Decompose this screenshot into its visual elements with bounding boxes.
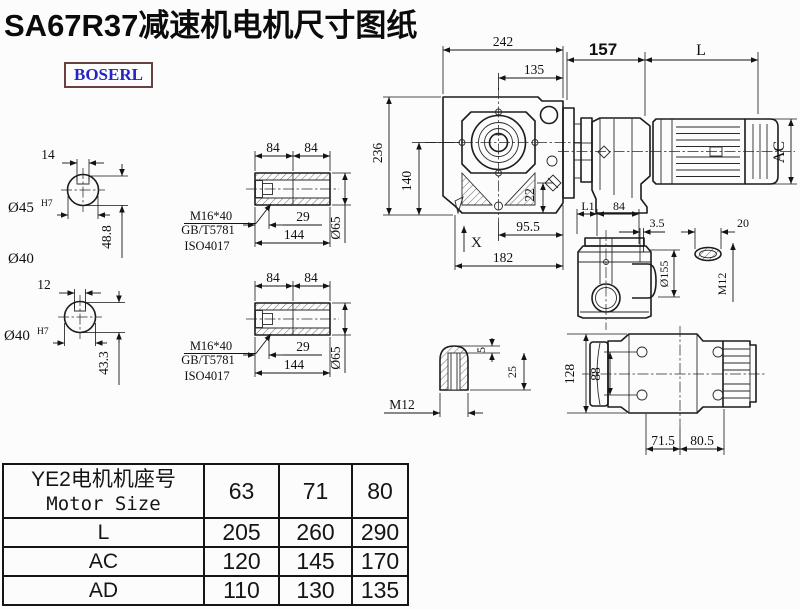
table-row-AD: AD 110 130 135 bbox=[3, 576, 408, 605]
table-header-row: YE2电机机座号 Motor Size 63 71 80 bbox=[3, 464, 408, 518]
dim-front-toaxis: 135 bbox=[524, 62, 545, 77]
table-row-AC: AC 120 145 170 bbox=[3, 547, 408, 576]
dim-side-gap: 3.5 bbox=[650, 216, 665, 230]
cell-AD-71: 130 bbox=[279, 576, 352, 605]
front-view-gearbox: 242 135 236 140 22 95.5 182 X bbox=[370, 34, 797, 270]
dim-side-flange: 84 bbox=[613, 199, 625, 213]
dim-keyheight-a: 48.8 bbox=[99, 225, 114, 249]
dim-bore-b: Ø40 bbox=[4, 328, 30, 344]
solid-shaft-section-a: 14 48.8 Ø45 H7 Ø40 bbox=[8, 147, 128, 267]
dim-bottom-right: 80.5 bbox=[690, 433, 714, 448]
dim-dia-b: Ø65 bbox=[328, 346, 343, 369]
label-std1-b: GB/T5781 bbox=[181, 353, 234, 367]
bottom-view-gearbox: 128 88 71.5 80.5 bbox=[562, 326, 766, 455]
dim-motor-len: L bbox=[696, 42, 706, 59]
dim-len1-b: 84 bbox=[266, 270, 280, 285]
dim-depth-b: 29 bbox=[296, 339, 310, 354]
dim-keywidth-a: 14 bbox=[41, 147, 55, 162]
side-view-gearbox: L1 84 3.5 Ø155 20 M12 bbox=[577, 199, 749, 330]
cell-L-80: 290 bbox=[352, 518, 408, 547]
label-key-thread: M12 bbox=[389, 397, 415, 412]
dim-len1-a: 84 bbox=[266, 140, 280, 155]
cell-AC-63: 120 bbox=[204, 547, 279, 576]
motor-size-table: YE2电机机座号 Motor Size 63 71 80 L 205 260 2… bbox=[2, 463, 409, 606]
label-std2-a: ISO4017 bbox=[184, 239, 229, 253]
hollow-shaft-view-a: 84 84 29 144 Ø65 M16*40 GB/T5781 ISO4017 bbox=[181, 140, 351, 253]
drawing-page: SA67R37减速机电机尺寸图纸 BOSERL 14 bbox=[0, 0, 800, 609]
cell-AC-80: 170 bbox=[352, 547, 408, 576]
cell-AC-71: 145 bbox=[279, 547, 352, 576]
dim-motor-dia: AC bbox=[771, 141, 788, 163]
label-screw-a: M16*40 bbox=[190, 209, 232, 223]
dim-side-thread: M12 bbox=[715, 273, 729, 296]
dim-adapter-len: 157 bbox=[589, 40, 617, 59]
header-cn: YE2电机机座号 bbox=[4, 467, 203, 492]
dim-fit-b: H7 bbox=[37, 327, 49, 337]
size-80: 80 bbox=[352, 464, 408, 518]
dim-front-width: 242 bbox=[493, 34, 513, 49]
solid-shaft-section-b: 12 43.3 Ø40 H7 bbox=[4, 277, 125, 385]
size-63: 63 bbox=[204, 464, 279, 518]
dim-front-foot: 95.5 bbox=[516, 219, 540, 234]
row-label-AC: AC bbox=[3, 547, 204, 576]
keyslot-detail: 5 25 M12 bbox=[384, 338, 531, 417]
dim-len2-b: 84 bbox=[304, 270, 318, 285]
dim-keyheight-b: 43.3 bbox=[96, 351, 111, 375]
dim-side-slot: 20 bbox=[737, 216, 749, 230]
dim-total-a: 144 bbox=[284, 227, 305, 242]
label-alt-bore: Ø40 bbox=[8, 251, 34, 267]
dim-side-dia: Ø155 bbox=[657, 261, 671, 288]
dim-front-axish: 140 bbox=[399, 171, 414, 192]
label-std1-a: GB/T5781 bbox=[181, 223, 234, 237]
cell-L-63: 205 bbox=[204, 518, 279, 547]
marker-x: X bbox=[471, 235, 482, 251]
dim-depth-a: 29 bbox=[296, 209, 310, 224]
cell-AD-80: 135 bbox=[352, 576, 408, 605]
label-screw-b: M16*40 bbox=[190, 339, 232, 353]
row-label-L: L bbox=[3, 518, 204, 547]
dim-len2-a: 84 bbox=[304, 140, 318, 155]
hollow-shaft-view-b: 84 84 29 144 Ø65 M16*40 GB/T5781 ISO4017 bbox=[181, 270, 351, 383]
cell-L-71: 260 bbox=[279, 518, 352, 547]
dim-keywidth-b: 12 bbox=[37, 277, 51, 292]
dim-fit-a: H7 bbox=[41, 199, 53, 209]
dim-dia-a: Ø65 bbox=[328, 216, 343, 239]
size-71: 71 bbox=[279, 464, 352, 518]
dim-front-base: 182 bbox=[493, 250, 513, 265]
label-std2-b: ISO4017 bbox=[184, 369, 229, 383]
dim-bottom-height: 128 bbox=[562, 364, 577, 385]
row-label-AD: AD bbox=[3, 576, 204, 605]
dim-bottom-boltspan: 88 bbox=[588, 367, 603, 381]
dim-bottom-left: 71.5 bbox=[651, 433, 675, 448]
dim-side-l1: L1 bbox=[581, 199, 594, 213]
cell-AD-63: 110 bbox=[204, 576, 279, 605]
dim-key-len: 25 bbox=[505, 366, 519, 378]
table-row-L: L 205 260 290 bbox=[3, 518, 408, 547]
dim-bore-a: Ø45 bbox=[8, 200, 34, 216]
header-en: Motor Size bbox=[4, 492, 203, 516]
dim-total-b: 144 bbox=[284, 357, 305, 372]
table-header-motor-size: YE2电机机座号 Motor Size bbox=[3, 464, 204, 518]
dim-front-height: 236 bbox=[370, 143, 385, 164]
dim-key-depth: 5 bbox=[474, 347, 488, 353]
dim-front-plug: 22 bbox=[522, 188, 537, 202]
